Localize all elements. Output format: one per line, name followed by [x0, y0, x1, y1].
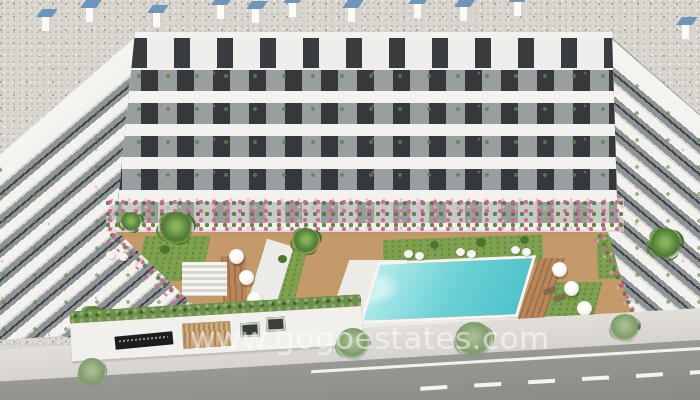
bush — [520, 236, 529, 244]
residence-sign — [115, 331, 174, 349]
roof-vent-solar-panel — [682, 24, 694, 39]
bush — [430, 241, 439, 249]
street-tree — [610, 314, 640, 342]
bush — [278, 255, 287, 263]
roof-vent-solar-panel — [86, 7, 98, 22]
roof-vent-solar-panel — [514, 1, 526, 16]
palm-tree — [158, 212, 194, 244]
sun-lounger-white — [106, 251, 115, 259]
roof-vent-solar-panel — [460, 6, 472, 21]
roof-vent-solar-panel — [217, 4, 229, 19]
sun-lounger-white — [467, 250, 476, 258]
parasol — [564, 281, 579, 296]
bush — [160, 245, 170, 254]
residence-sign-text — [119, 336, 168, 343]
road-dash-marking — [690, 369, 700, 375]
roof-vent-solar-panel — [414, 3, 426, 18]
sun-lounger-white — [456, 248, 465, 256]
palm-tree — [292, 228, 320, 254]
parasol — [239, 270, 254, 285]
sun-lounger-white — [522, 248, 531, 256]
sun-lounger-white — [511, 246, 520, 254]
penthouse-floor-windows — [131, 38, 616, 68]
parasol — [229, 249, 244, 264]
roof-vent-solar-panel — [42, 16, 54, 31]
roof-vent-solar-panel — [252, 8, 264, 23]
palm-tree — [120, 212, 142, 232]
roof-vent-solar-panel — [289, 2, 301, 17]
render-scene: www.gogoestates.com — [0, 0, 700, 400]
roof-vent-solar-panel — [153, 12, 165, 27]
watermark-text: www.gogoestates.com — [190, 320, 530, 356]
street-tree — [78, 358, 106, 388]
parasol — [552, 262, 567, 277]
roof-vent-solar-panel — [348, 7, 360, 22]
bush — [476, 238, 486, 247]
pergola-terrace — [182, 262, 227, 296]
sun-lounger-white — [404, 250, 413, 258]
palm-tree — [648, 228, 682, 260]
sun-lounger-white — [415, 252, 424, 260]
